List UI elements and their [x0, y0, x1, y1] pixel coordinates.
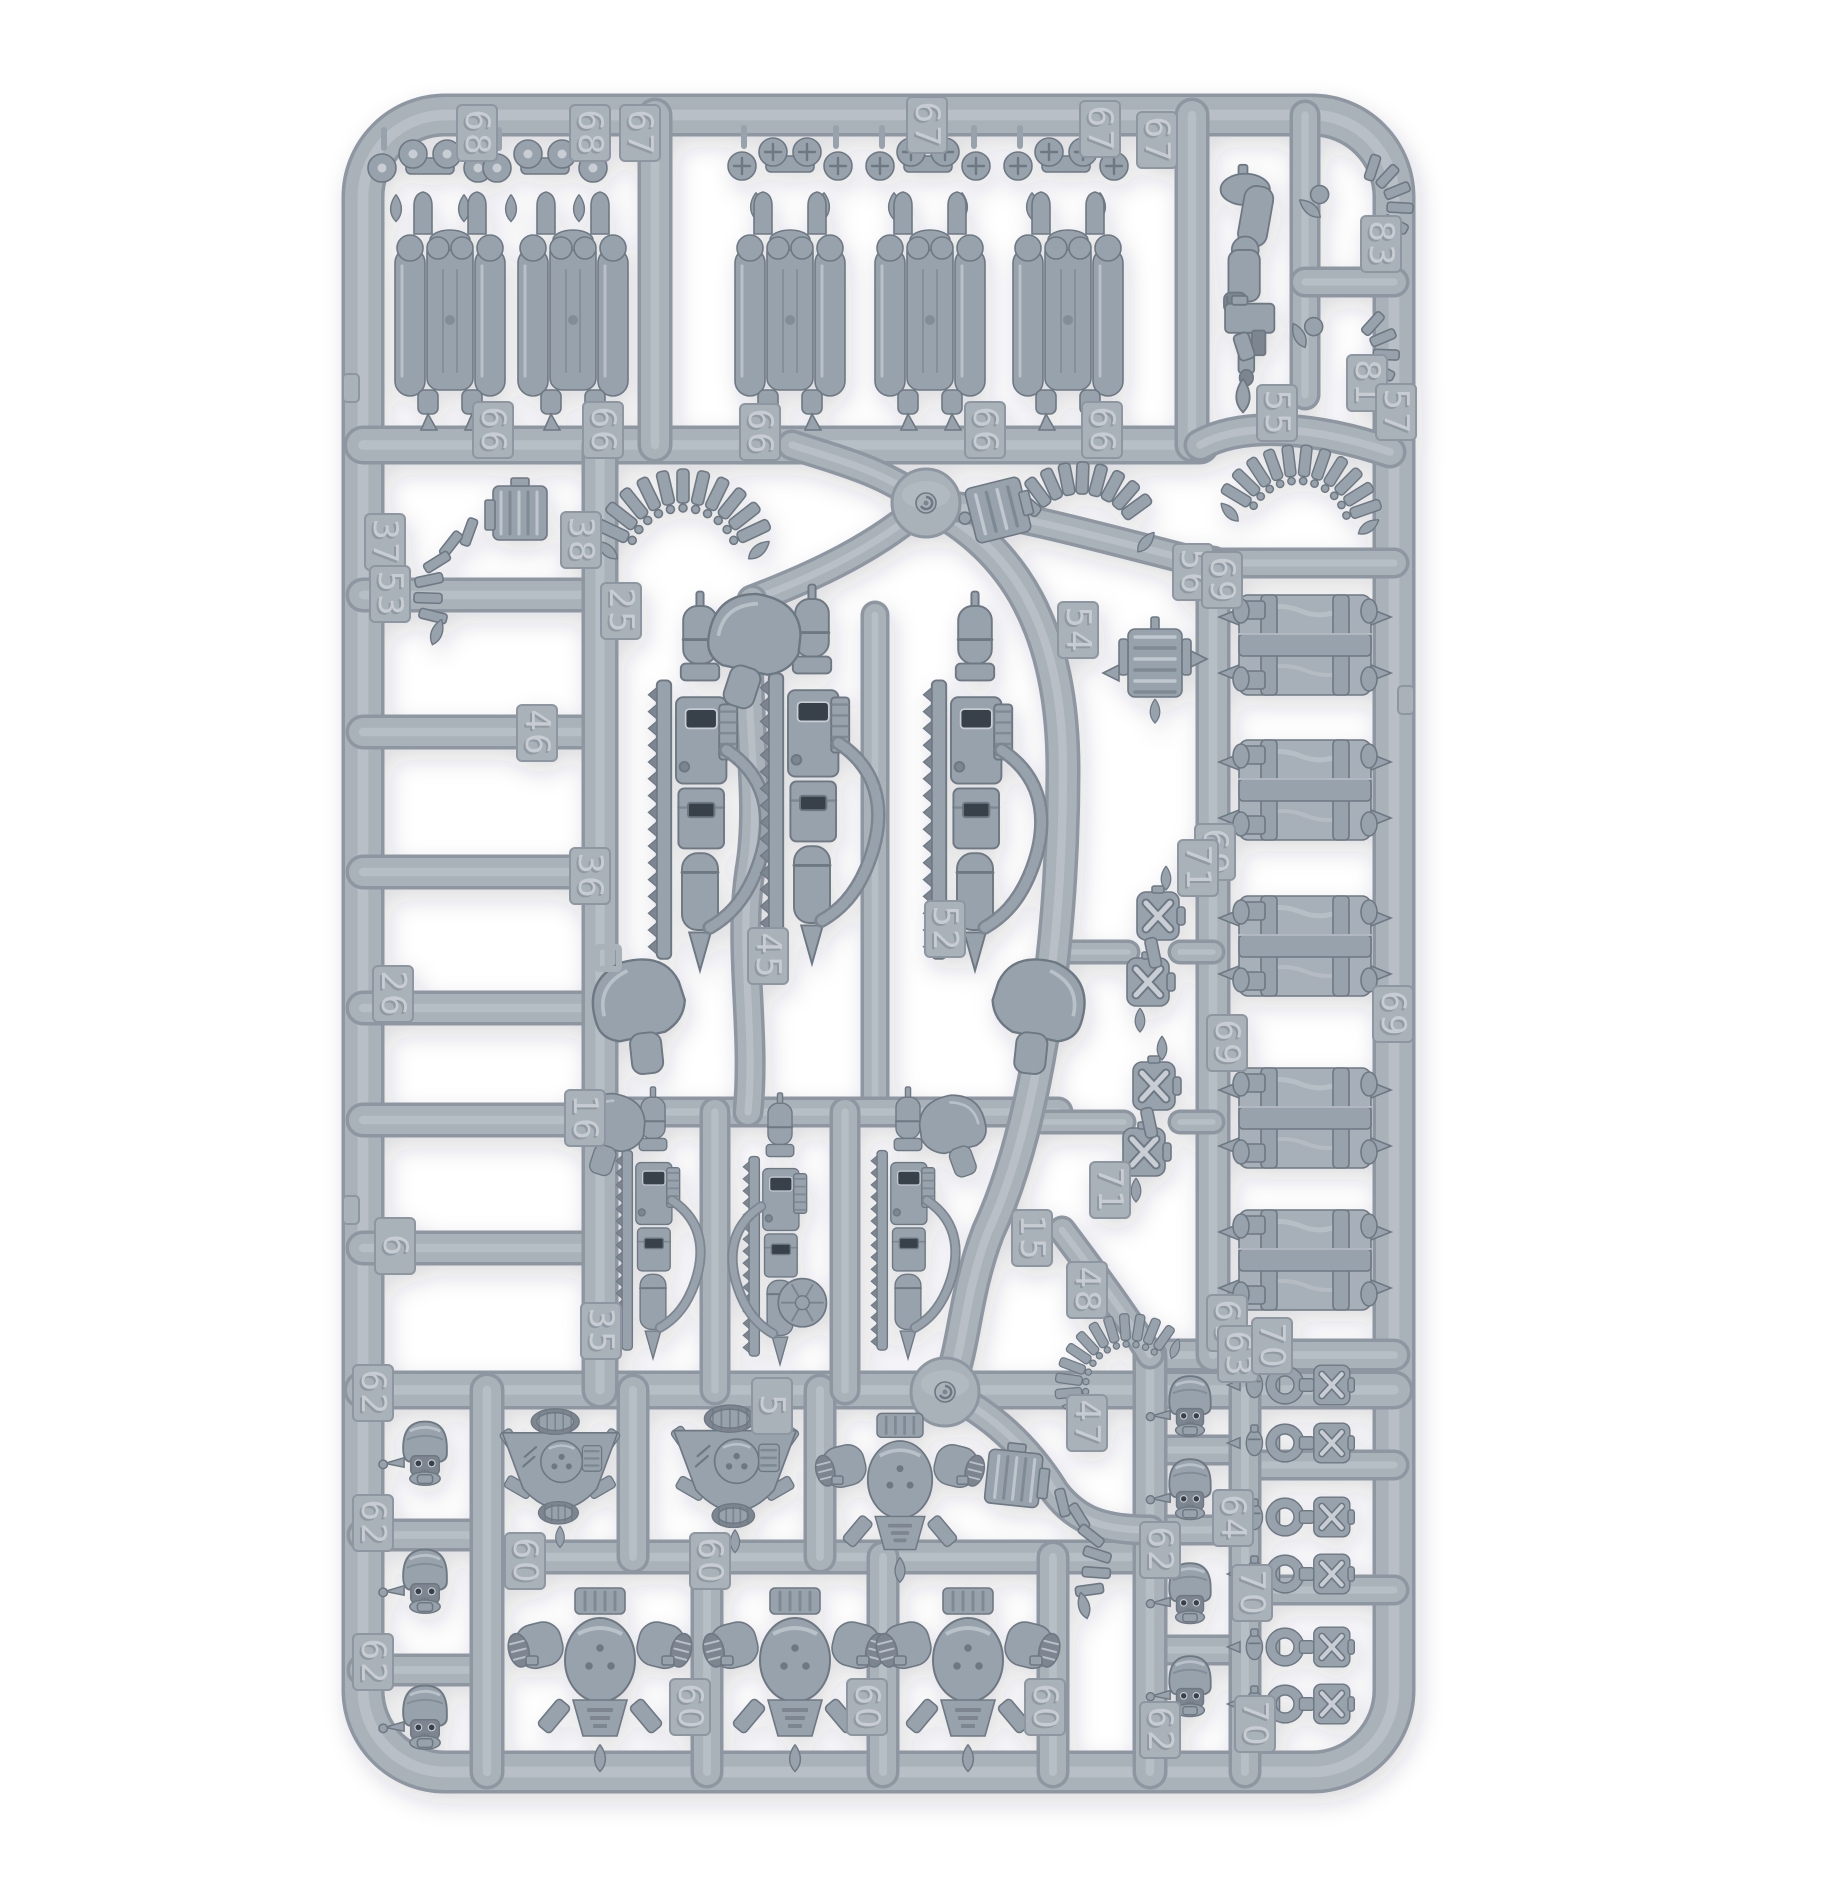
part-number-label: 4848 — [1065, 1262, 1107, 1318]
svg-text:60: 60 — [690, 1537, 730, 1584]
sprue-photo-canvas: 6868686867676767676767676666666666666666… — [0, 0, 1840, 1900]
part-number-label: 5353 — [368, 566, 410, 622]
part-number-label: 6262 — [351, 1634, 393, 1690]
svg-text:16: 16 — [565, 1094, 605, 1141]
svg-text:54: 54 — [1058, 606, 1098, 653]
part-number-label: 6666 — [738, 404, 780, 460]
part-number-label: 6060 — [668, 1679, 710, 1735]
part-number-label: 4747 — [1065, 1395, 1107, 1451]
part-number-label: 5555 — [1255, 385, 1297, 441]
svg-text:52: 52 — [925, 905, 965, 952]
svg-text:46: 46 — [517, 709, 557, 756]
part-number-label: 6868 — [455, 105, 497, 161]
svg-text:25: 25 — [601, 587, 641, 634]
svg-text:47: 47 — [1067, 1399, 1107, 1446]
part-number-label: 6060 — [1023, 1679, 1065, 1735]
svg-text:67: 67 — [907, 101, 947, 148]
svg-text:60: 60 — [847, 1683, 887, 1730]
svg-text:62: 62 — [353, 1369, 393, 1416]
svg-text:71: 71 — [1178, 844, 1218, 891]
svg-text:35: 35 — [581, 1307, 621, 1354]
part-number-label: 6767 — [905, 97, 947, 153]
svg-text:67: 67 — [1137, 116, 1177, 163]
part-number-label: 3535 — [579, 1303, 621, 1359]
part-crate — [1219, 1068, 1391, 1168]
part-number-label: 7171 — [1176, 840, 1218, 896]
svg-text:37: 37 — [365, 518, 405, 565]
svg-text:71: 71 — [1090, 1166, 1130, 1213]
part-number-label: 5454 — [1056, 602, 1098, 658]
svg-text:70: 70 — [1235, 1700, 1275, 1747]
part-number-label: 6666 — [963, 402, 1005, 458]
svg-text:69: 69 — [1373, 990, 1413, 1037]
svg-text:53: 53 — [370, 570, 410, 617]
part-number-label: 6969 — [1205, 1015, 1247, 1071]
part-number-label: 6767 — [1078, 101, 1120, 157]
svg-text:36: 36 — [570, 852, 610, 899]
part-number-label: 66 — [373, 1218, 415, 1274]
svg-text:55: 55 — [1257, 389, 1297, 436]
part-number-label: 5757 — [1374, 384, 1416, 440]
svg-text:60: 60 — [1025, 1683, 1065, 1730]
svg-text:66: 66 — [583, 406, 623, 453]
part-number-label: 3636 — [568, 848, 610, 904]
part-number-label: 5252 — [923, 901, 965, 957]
part-crate — [1219, 595, 1391, 695]
part-number-label: 6868 — [568, 105, 610, 161]
part-number-label: 7070 — [1250, 1318, 1292, 1374]
svg-text:62: 62 — [1140, 1526, 1180, 1573]
part-number-label: 3737 — [363, 514, 405, 570]
part-number-label: 6767 — [1135, 112, 1177, 168]
svg-text:62: 62 — [353, 1499, 393, 1546]
part-number-label: 4646 — [515, 705, 557, 761]
part-number-label: 1616 — [563, 1090, 605, 1146]
svg-text:69: 69 — [1202, 556, 1242, 603]
part-number-label: 4545 — [746, 928, 788, 984]
svg-text:69: 69 — [1207, 1019, 1247, 1066]
part-number-label: 7070 — [1233, 1696, 1275, 1752]
svg-text:60: 60 — [505, 1537, 545, 1584]
svg-text:68: 68 — [570, 109, 610, 156]
svg-text:15: 15 — [1012, 1214, 1052, 1261]
part-number-label: 6060 — [503, 1533, 545, 1589]
svg-text:60: 60 — [670, 1683, 710, 1730]
part-number-label: 6262 — [1138, 1522, 1180, 1578]
svg-text:66: 66 — [473, 406, 513, 453]
part-number-label: 6464 — [1211, 1490, 1253, 1546]
part-number-label: 6767 — [618, 105, 660, 161]
part-number-label: 6969 — [1371, 986, 1413, 1042]
svg-text:26: 26 — [373, 970, 413, 1017]
part-crate — [1219, 740, 1391, 840]
part-number-label: 6666 — [1080, 402, 1122, 458]
svg-text:66: 66 — [1082, 406, 1122, 453]
part-number-label: 3838 — [559, 512, 601, 568]
part-number-label: 7171 — [1088, 1162, 1130, 1218]
part-number-label: 7070 — [1230, 1565, 1272, 1621]
part-number-label: 6262 — [1138, 1702, 1180, 1758]
svg-text:70: 70 — [1252, 1322, 1292, 1369]
svg-text:62: 62 — [353, 1638, 393, 1685]
part-number-label: 6969 — [1200, 552, 1242, 608]
svg-text:6: 6 — [375, 1234, 415, 1258]
svg-text:70: 70 — [1232, 1569, 1272, 1616]
svg-text:57: 57 — [1376, 388, 1416, 435]
svg-text:66: 66 — [965, 406, 1005, 453]
svg-text:45: 45 — [748, 932, 788, 979]
svg-text:67: 67 — [1080, 105, 1120, 152]
part-number-label: 2626 — [371, 966, 413, 1022]
part-number-label: 6262 — [351, 1495, 393, 1551]
svg-text:62: 62 — [1140, 1706, 1180, 1753]
svg-text:64: 64 — [1213, 1494, 1253, 1541]
part-crate — [1219, 896, 1391, 996]
part-hub — [892, 469, 960, 537]
svg-text:67: 67 — [620, 109, 660, 156]
svg-text:83: 83 — [1361, 220, 1401, 267]
part-number-label: 55 — [750, 1378, 792, 1434]
part-number-label: 6060 — [845, 1679, 887, 1735]
part-number-label: 6666 — [581, 402, 623, 458]
part-number-label: 6060 — [688, 1533, 730, 1589]
svg-text:38: 38 — [561, 516, 601, 563]
svg-text:5: 5 — [752, 1394, 792, 1418]
part-number-label: 6666 — [471, 402, 513, 458]
part-number-label: 1515 — [1010, 1210, 1052, 1266]
sprue-photo: 6868686867676767676767676666666666666666… — [0, 0, 1840, 1900]
part-number-label: 8383 — [1359, 216, 1401, 272]
svg-text:48: 48 — [1067, 1266, 1107, 1313]
svg-text:68: 68 — [457, 109, 497, 156]
svg-text:66: 66 — [740, 408, 780, 455]
part-number-label: 2525 — [599, 583, 641, 639]
part-number-label: 6262 — [351, 1365, 393, 1421]
